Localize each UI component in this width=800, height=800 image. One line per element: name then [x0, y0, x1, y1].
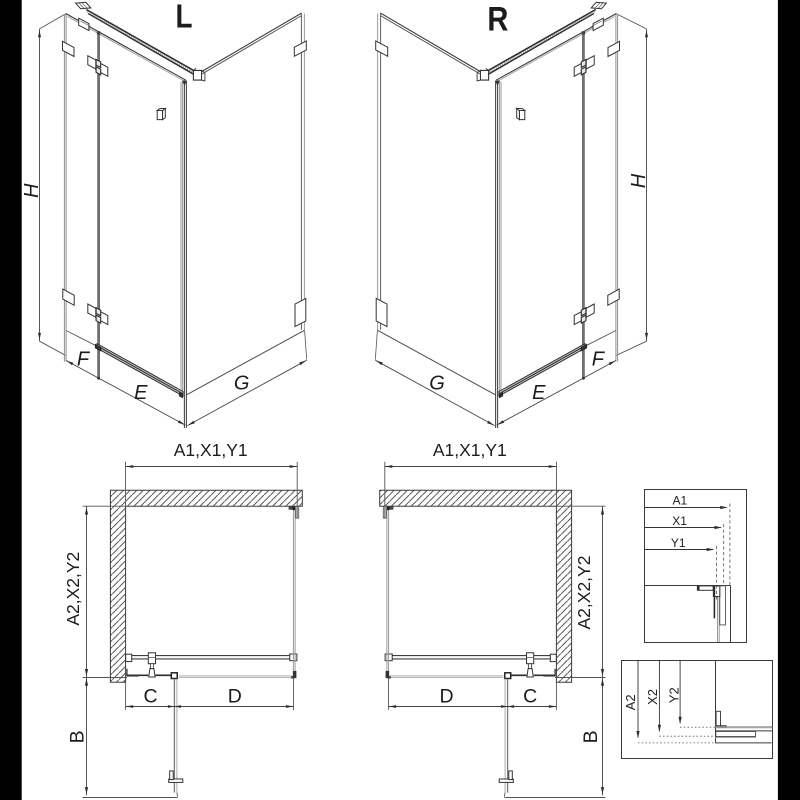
svg-text:E: E [134, 382, 148, 404]
svg-text:Y1: Y1 [671, 536, 686, 550]
svg-text:F: F [77, 348, 91, 370]
svg-text:B: B [66, 730, 88, 743]
svg-text:A1,X1,Y1: A1,X1,Y1 [433, 440, 507, 460]
svg-text:G: G [429, 372, 445, 394]
svg-text:G: G [234, 372, 250, 394]
svg-text:D: D [228, 686, 242, 708]
svg-text:C: C [523, 686, 537, 708]
svg-text:B: B [580, 730, 602, 743]
svg-text:X1: X1 [672, 514, 687, 528]
svg-text:A2: A2 [623, 694, 638, 710]
svg-text:E: E [532, 382, 546, 404]
svg-text:R: R [487, 0, 508, 38]
svg-text:C: C [143, 686, 157, 708]
svg-text:A1: A1 [673, 494, 688, 508]
svg-text:L: L [176, 0, 193, 35]
svg-text:H: H [628, 173, 650, 188]
svg-text:H: H [21, 183, 43, 198]
svg-text:D: D [440, 686, 454, 708]
svg-text:A2,X2,Y2: A2,X2,Y2 [574, 556, 594, 630]
svg-text:Y2: Y2 [666, 687, 681, 703]
svg-text:A1,X1,Y1: A1,X1,Y1 [174, 440, 248, 460]
svg-text:X2: X2 [645, 689, 660, 705]
svg-text:A2,X2,Y2: A2,X2,Y2 [63, 552, 83, 626]
svg-text:F: F [592, 348, 606, 370]
